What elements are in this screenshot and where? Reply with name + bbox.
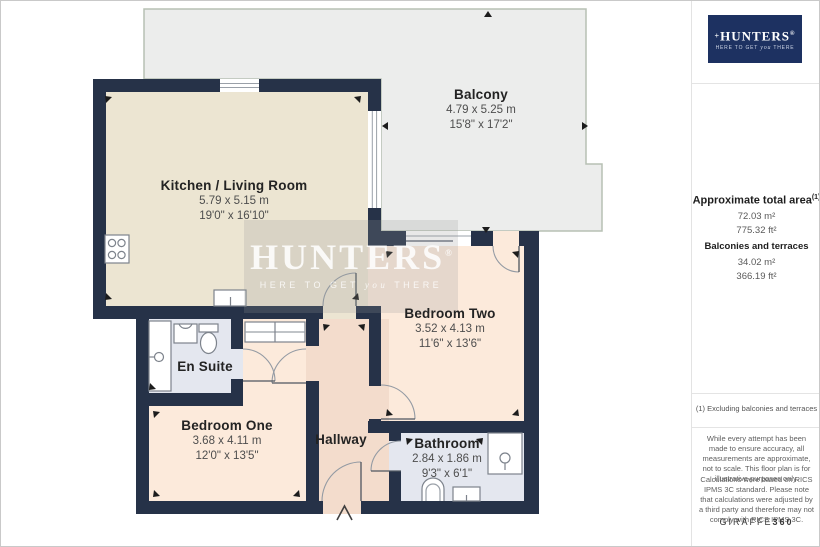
toilet-icon-ensuite <box>199 324 218 354</box>
room-name: Hallway <box>315 431 367 448</box>
hunters-logo: +HUNTERS® HERE TO GET you THERE <box>708 15 802 63</box>
room-name: Bathroom <box>412 435 482 452</box>
room-name: Balcony <box>446 86 516 103</box>
registered-mark: ® <box>790 31 795 37</box>
room-dim-metric: 3.68 x 4.11 m <box>181 434 272 449</box>
room-dim-metric: 5.79 x 5.15 m <box>161 194 308 209</box>
balconies-terraces-title: Balconies and terraces <box>692 241 820 252</box>
sidebar-divider <box>692 393 820 394</box>
sidebar-divider <box>692 83 820 84</box>
shower-icon-ensuite <box>149 321 171 391</box>
footnote-marker: (1) <box>812 194 820 201</box>
room-dim-imperial: 9'3" x 6'1" <box>412 467 482 482</box>
room-label-balcony: Balcony 4.79 x 5.25 m 15'8" x 17'2" <box>446 86 516 132</box>
watermark-brand-text: HUNTERS <box>250 237 445 277</box>
room-label-hallway: Hallway <box>315 431 367 448</box>
hunters-watermark: HUNTERS® HERE TO GET you THERE <box>244 220 458 313</box>
wardrobe-icon <box>245 322 305 342</box>
total-area-title: Approximate total area(1) <box>692 194 820 207</box>
kitchen-sink-icon <box>214 290 246 306</box>
room-dim-imperial: 15'8" x 17'2" <box>446 118 516 133</box>
room-dim-metric: 2.84 x 1.86 m <box>412 452 482 467</box>
stove-icon <box>105 235 129 263</box>
room-label-bedroom-two: Bedroom Two 3.52 x 4.13 m 11'6" x 13'6" <box>404 305 495 351</box>
room-name: En Suite <box>177 358 233 375</box>
floorplan-sheet: Balcony 4.79 x 5.25 m 15'8" x 17'2" Kitc… <box>0 0 820 547</box>
total-area-ft2: 775.32 ft² <box>692 225 820 236</box>
footnote-text: (1) Excluding balconies and terraces <box>692 404 820 413</box>
balcony-area-ft2: 366.19 ft² <box>692 271 820 282</box>
room-dim-metric: 3.52 x 4.13 m <box>404 322 495 337</box>
watermark-tagline: HERE TO GET you THERE <box>244 280 458 290</box>
shower-icon-bathroom <box>488 433 522 474</box>
window-kitchen-top <box>220 79 259 92</box>
room-label-kitchen-living: Kitchen / Living Room 5.79 x 5.15 m 19'0… <box>161 177 308 223</box>
room-label-bathroom: Bathroom 2.84 x 1.86 m 9'3" x 6'1" <box>412 435 482 481</box>
sink-icon-bathroom <box>453 487 480 501</box>
window-kitchen-right <box>368 111 381 208</box>
room-dim-imperial: 19'0" x 16'10" <box>161 209 308 224</box>
room-label-en-suite: En Suite <box>177 358 233 375</box>
info-sidebar: +HUNTERS® HERE TO GET you THERE Approxim… <box>691 1 820 547</box>
room-dim-imperial: 11'6" x 13'6" <box>404 337 495 352</box>
balcony-area-m2: 34.02 m² <box>692 257 820 268</box>
logo-brand: +HUNTERS® <box>708 27 802 43</box>
toilet-icon-bathroom <box>422 478 444 501</box>
giraffe360-attribution: GIRAFFE360 <box>692 517 820 527</box>
room-name: Kitchen / Living Room <box>161 177 308 194</box>
watermark-brand: HUNTERS® <box>244 234 458 276</box>
logo-tagline: HERE TO GET you THERE <box>708 45 802 51</box>
sink-icon-ensuite <box>174 324 197 343</box>
sidebar-divider <box>692 427 820 428</box>
room-name: Bedroom Two <box>404 305 495 322</box>
floorplan-area: Balcony 4.79 x 5.25 m 15'8" x 17'2" Kitc… <box>1 1 691 547</box>
total-area-m2: 72.03 m² <box>692 211 820 222</box>
room-dim-imperial: 12'0" x 13'5" <box>181 449 272 464</box>
room-label-bedroom-one: Bedroom One 3.68 x 4.11 m 12'0" x 13'5" <box>181 417 272 463</box>
room-dim-metric: 4.79 x 5.25 m <box>446 103 516 118</box>
registered-mark: ® <box>445 248 452 258</box>
room-name: Bedroom One <box>181 417 272 434</box>
